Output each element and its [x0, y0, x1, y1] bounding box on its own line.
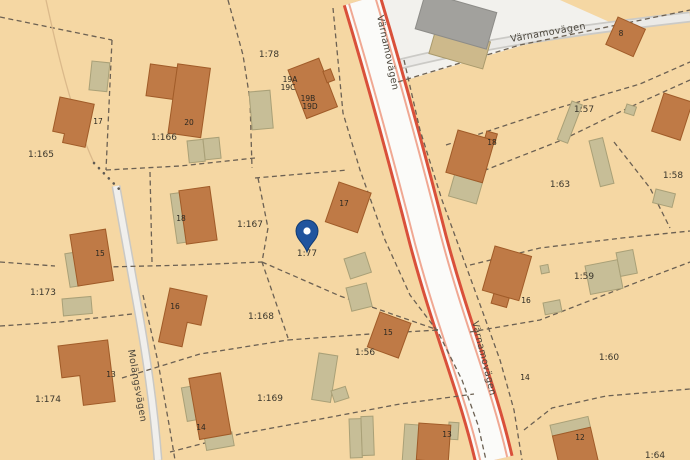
parcel-label: 1:59: [574, 272, 594, 282]
parcel-label: 1:165: [28, 150, 54, 160]
parcel-label: 1:173: [30, 288, 56, 298]
parcel-label: 1:166: [151, 133, 177, 143]
parcel-label: 1:174: [35, 395, 61, 405]
parcel-label: 1:56: [355, 348, 375, 358]
parcel-label: 1:57: [574, 105, 594, 115]
parcel-label: 1:64: [645, 451, 665, 460]
parcel-label: 1:169: [257, 394, 283, 404]
house-number: 15: [95, 249, 105, 258]
parcel-label: 1:168: [248, 312, 274, 322]
property-map: Värnamovägen Värnamovägen Värnamovägen M…: [0, 0, 690, 460]
house-number: 19D: [302, 102, 318, 111]
house-number: 14: [520, 373, 530, 382]
house-number: 16: [170, 302, 180, 311]
house-number: 8: [619, 29, 624, 38]
parcel-label: 1:58: [663, 171, 683, 181]
house-number: 18: [176, 214, 186, 223]
parcel-label: 1:60: [599, 353, 619, 363]
house-number: 13: [106, 370, 116, 379]
map-viewport[interactable]: Värnamovägen Värnamovägen Värnamovägen M…: [0, 0, 690, 460]
house-number: 17: [339, 199, 349, 208]
house-number: 13: [442, 430, 452, 439]
parcel-label: 1:78: [259, 50, 279, 60]
parcel-label: 1:167: [237, 220, 263, 230]
house-number: 16: [521, 296, 531, 305]
house-number: 18: [487, 138, 497, 147]
house-number: 20: [184, 118, 194, 127]
house-number: 17: [93, 117, 103, 126]
house-number: 15: [383, 328, 393, 337]
house-number: 12: [575, 433, 585, 442]
house-number: 14: [196, 423, 206, 432]
house-number: 19C: [281, 83, 296, 92]
parcel-label: 1:63: [550, 180, 570, 190]
